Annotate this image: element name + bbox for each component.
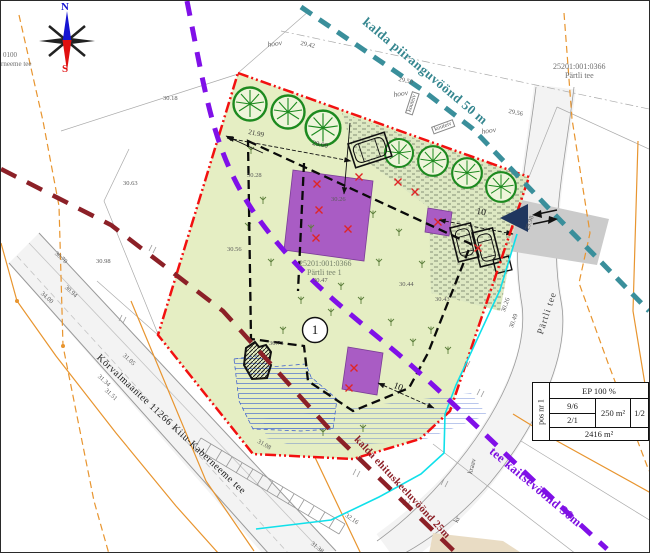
elevation-label: 30.26 [331,197,346,204]
elevation-label: 30.63 [123,181,138,188]
elevation-label: 30.47 [313,278,328,285]
table-pos-label: pos nr 1 [537,399,546,425]
elevation-label: 30.73 [269,341,284,348]
yard-label: hoov [393,89,408,98]
edge-parcel-name: rneeme tee [1,61,32,68]
site-plan: N S 0100 rneeme tee 25201:001:0366 Pärtl… [0,0,650,553]
plot-number: 1 [312,323,319,336]
table-ratio-cell: 9/6 2/1 [550,399,596,427]
table-building-area-cell: 250 m² [596,399,631,427]
compass-south-label: S [62,64,68,75]
compass-north-label: N [61,2,69,13]
setback-dimension: 10 [476,208,487,219]
title-block-table: pos nr 1 EP 100 % 9/6 2/1 250 m² 1/2 241… [532,382,649,441]
elevation-label: 30.18 [163,96,178,103]
neighbor-parcel-name: Pärtli tee [565,72,594,80]
elevation-label: 30.56 [227,247,242,254]
elevation-label: 30.98 [96,259,111,266]
table-storeys-cell: 1/2 [631,399,648,427]
compass-rose [39,11,95,71]
yard-label: hoov [267,39,282,48]
site-parcel-code: 25201:001:0366 [299,260,351,268]
elevation-label: 30.28 [247,173,262,180]
table-pos-cell: pos nr 1 [533,383,550,440]
yard-label: hoov [481,126,496,135]
elevation-label: 30.43 [435,297,450,304]
table-usage-cell: EP 100 % [550,383,648,399]
table-ratio-a: 9/6 [550,399,595,414]
table-plot-area-cell: 2416 m² [550,428,648,440]
edge-parcel-code: 0100 [3,52,17,59]
site-parcel-name: Pärtli tee 1 [307,269,342,277]
table-ratio-b: 2/1 [550,414,595,428]
elevation-label: 30.44 [399,282,414,289]
neighbor-parcel-code: 25201:001:0366 [553,63,605,71]
